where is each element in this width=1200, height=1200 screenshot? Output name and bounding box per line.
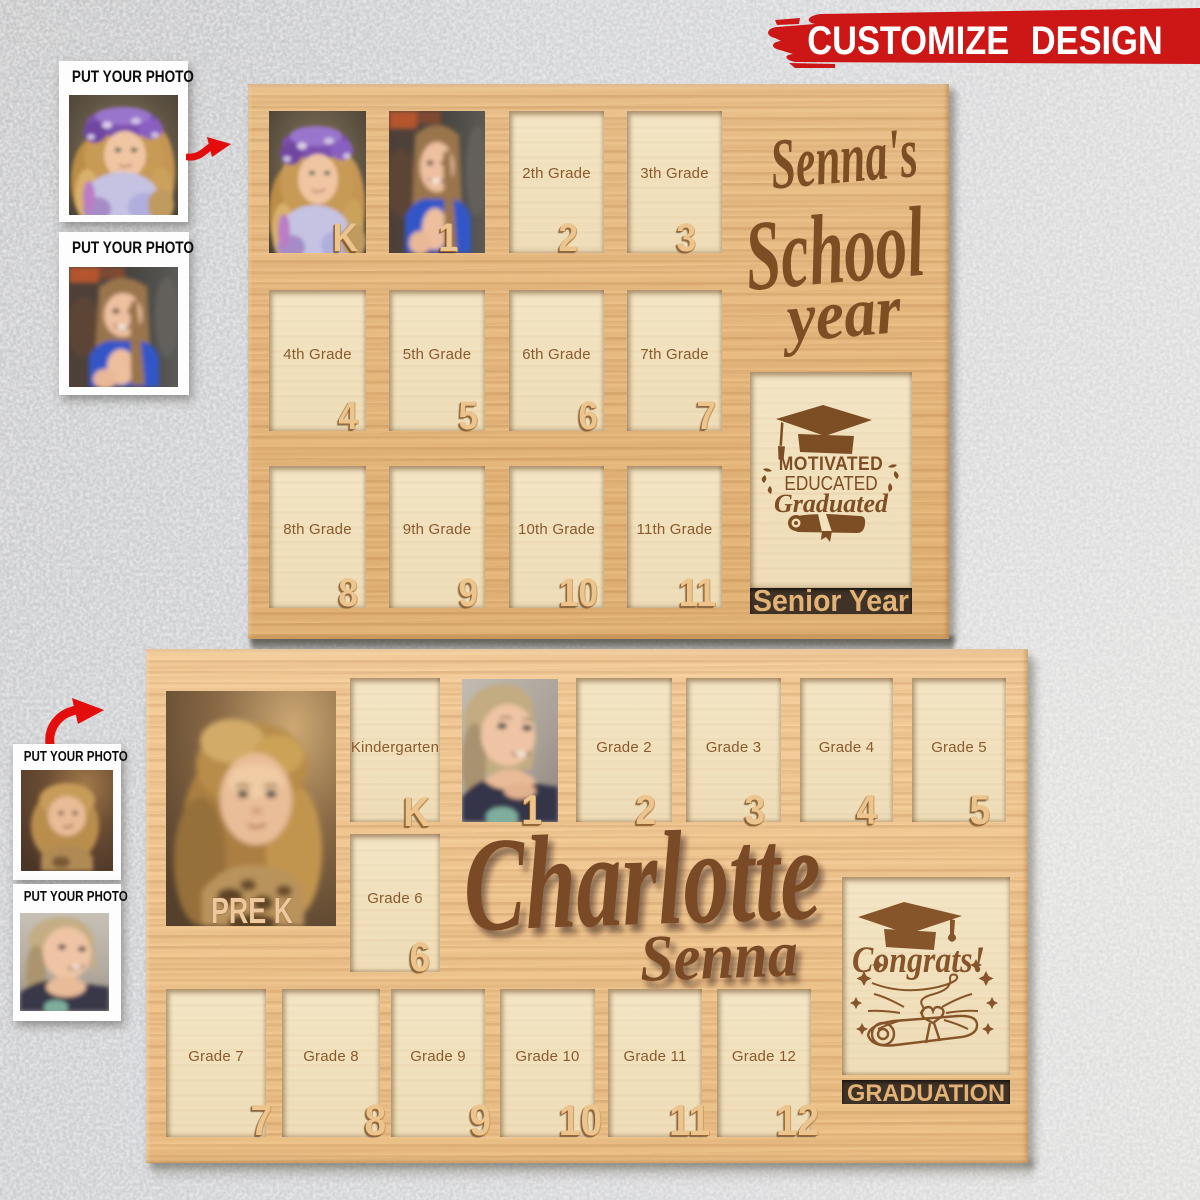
- svg-text:CUSTOMIZE DESIGN: CUSTOMIZE DESIGN: [807, 18, 1162, 63]
- svg-text:Senna: Senna: [639, 917, 799, 995]
- svg-text:Congrats!: Congrats!: [852, 940, 985, 981]
- svg-text:PRE K: PRE K: [211, 896, 293, 928]
- svg-text:Graduated: Graduated: [774, 489, 889, 518]
- svg-text:year: year: [777, 271, 904, 358]
- svg-text:Senior Year: Senior Year: [753, 586, 909, 616]
- svg-text:GRADUATION: GRADUATION: [847, 1080, 1005, 1105]
